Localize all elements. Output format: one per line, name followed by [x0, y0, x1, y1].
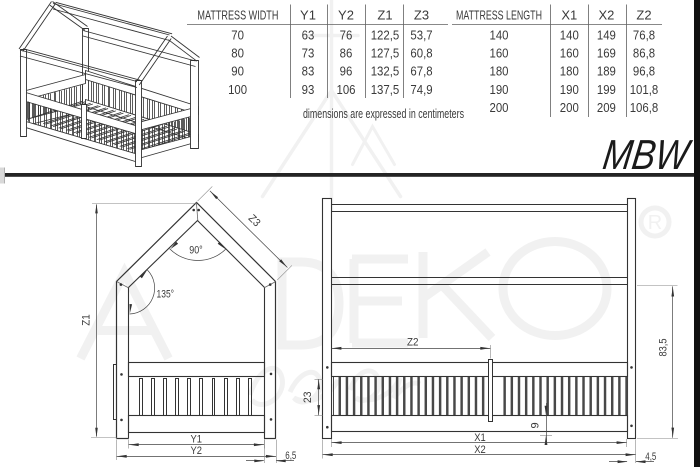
svg-text:101,8: 101,8: [630, 82, 659, 97]
svg-text:209: 209: [597, 100, 616, 115]
svg-text:Y2: Y2: [191, 445, 203, 457]
svg-text:MATTRESS WIDTH: MATTRESS WIDTH: [197, 8, 278, 23]
svg-text:9: 9: [530, 422, 542, 428]
svg-text:96: 96: [340, 64, 353, 79]
svg-text:Z3: Z3: [414, 8, 429, 23]
svg-text:86,8: 86,8: [633, 46, 655, 61]
svg-text:76,8: 76,8: [633, 27, 655, 42]
svg-text:74,9: 74,9: [410, 82, 432, 97]
svg-text:132,5: 132,5: [371, 64, 400, 79]
svg-text:X2: X2: [598, 8, 614, 23]
svg-text:160: 160: [490, 46, 509, 61]
svg-text:200: 200: [560, 100, 579, 115]
svg-text:Z2: Z2: [636, 8, 651, 23]
svg-text:199: 199: [597, 82, 616, 97]
svg-text:X1: X1: [561, 8, 577, 23]
svg-text:dimensions are expressed in ce: dimensions are expressed in centimeters: [303, 107, 464, 121]
svg-text:169: 169: [597, 46, 616, 61]
svg-text:100: 100: [228, 82, 247, 97]
svg-text:Z1: Z1: [377, 8, 392, 23]
svg-text:106,8: 106,8: [630, 100, 659, 115]
svg-text:135°: 135°: [157, 289, 175, 301]
svg-text:90: 90: [231, 64, 244, 79]
svg-text:122,5: 122,5: [371, 27, 400, 42]
svg-text:86: 86: [340, 46, 353, 61]
svg-text:180: 180: [560, 64, 579, 79]
svg-text:4,5: 4,5: [645, 451, 656, 463]
svg-text:149: 149: [597, 27, 616, 42]
svg-text:127,5: 127,5: [371, 46, 400, 61]
svg-text:106: 106: [337, 82, 356, 97]
svg-text:60,8: 60,8: [410, 46, 432, 61]
svg-text:160: 160: [560, 46, 579, 61]
svg-text:189: 189: [597, 64, 616, 79]
svg-text:MATTRESS LENGTH: MATTRESS LENGTH: [456, 8, 542, 23]
svg-text:6,5: 6,5: [285, 450, 296, 462]
svg-text:MBW: MBW: [600, 131, 695, 178]
svg-text:190: 190: [490, 82, 509, 97]
svg-text:96,8: 96,8: [633, 64, 655, 79]
svg-text:90°: 90°: [189, 245, 203, 257]
svg-text:Y2: Y2: [338, 8, 354, 23]
svg-text:Y1: Y1: [300, 8, 316, 23]
svg-text:R: R: [648, 212, 662, 234]
svg-text:23: 23: [302, 391, 314, 403]
svg-text:80: 80: [231, 46, 244, 61]
svg-text:53,7: 53,7: [410, 27, 432, 42]
svg-text:140: 140: [560, 27, 579, 42]
svg-text:93: 93: [302, 82, 315, 97]
svg-text:200: 200: [490, 100, 509, 115]
svg-text:137,5: 137,5: [371, 82, 400, 97]
svg-text:67,8: 67,8: [410, 64, 432, 79]
svg-text:83: 83: [302, 64, 315, 79]
svg-text:63: 63: [302, 27, 315, 42]
svg-text:73: 73: [302, 46, 315, 61]
svg-text:190: 190: [560, 82, 579, 97]
svg-text:X2: X2: [474, 444, 486, 456]
svg-text:140: 140: [490, 27, 509, 42]
svg-text:Z1: Z1: [81, 314, 93, 326]
svg-text:X1: X1: [474, 432, 486, 444]
svg-text:Z2: Z2: [407, 337, 419, 349]
svg-text:76: 76: [340, 27, 353, 42]
svg-text:Y1: Y1: [191, 434, 203, 446]
svg-text:70: 70: [231, 27, 244, 42]
svg-text:180: 180: [490, 64, 509, 79]
svg-text:83,5: 83,5: [658, 339, 670, 357]
